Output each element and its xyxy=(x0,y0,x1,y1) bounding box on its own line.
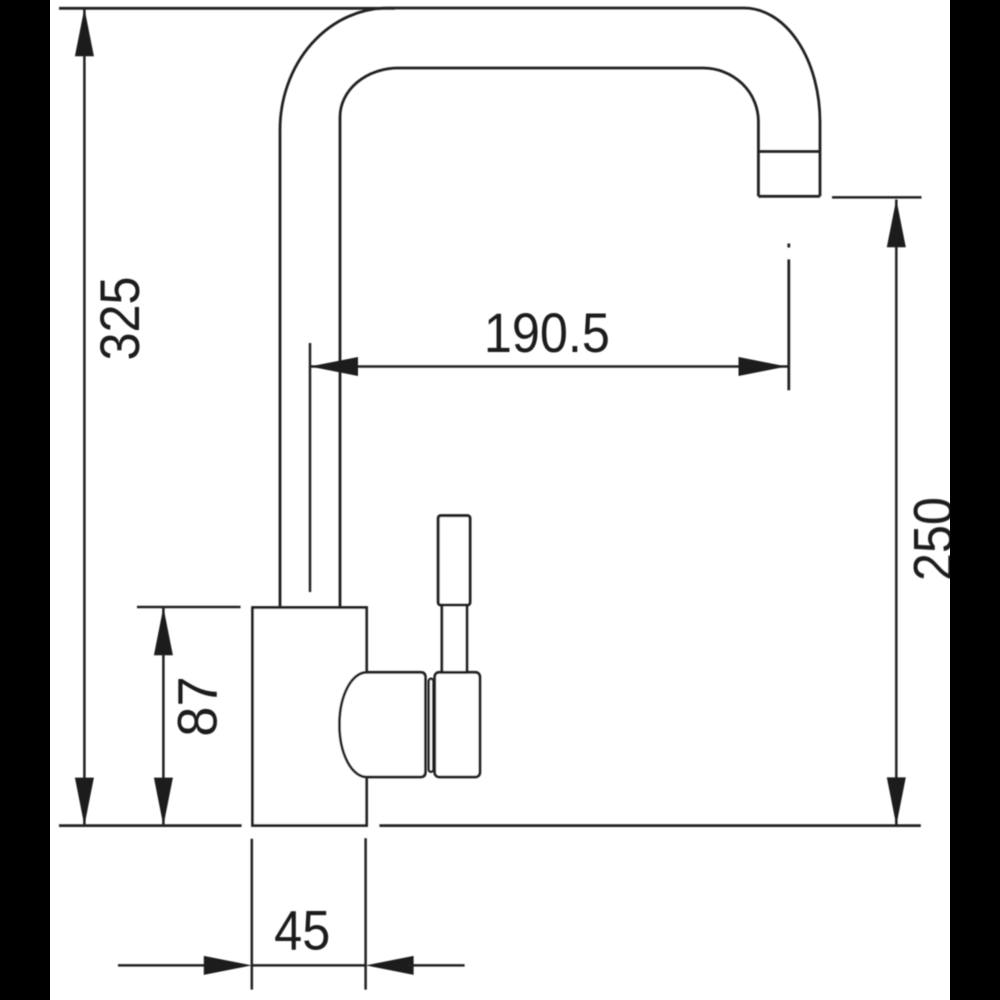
svg-text:87: 87 xyxy=(166,676,229,736)
svg-text:190.5: 190.5 xyxy=(484,302,610,364)
svg-text:325: 325 xyxy=(90,276,152,360)
svg-text:45: 45 xyxy=(274,900,330,962)
